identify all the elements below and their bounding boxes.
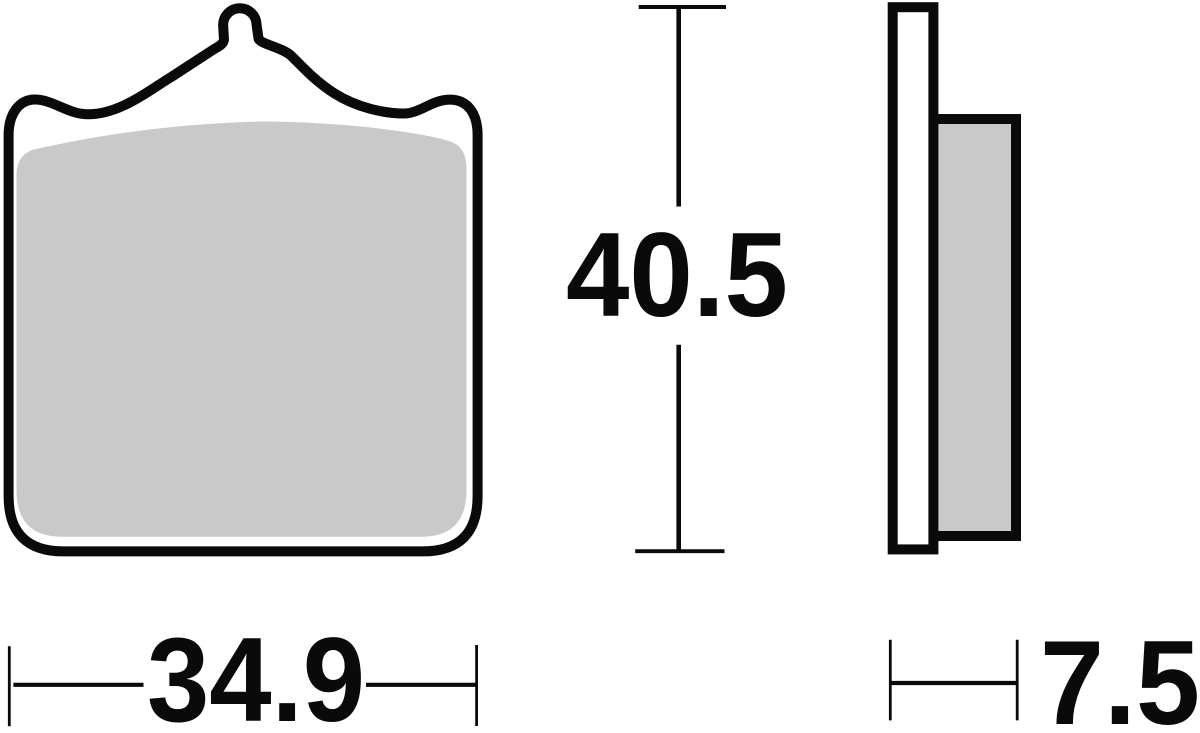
svg-text:34.9: 34.9 [147,613,365,733]
svg-text:7.5: 7.5 [1040,616,1200,733]
svg-text:40.5: 40.5 [566,208,788,342]
